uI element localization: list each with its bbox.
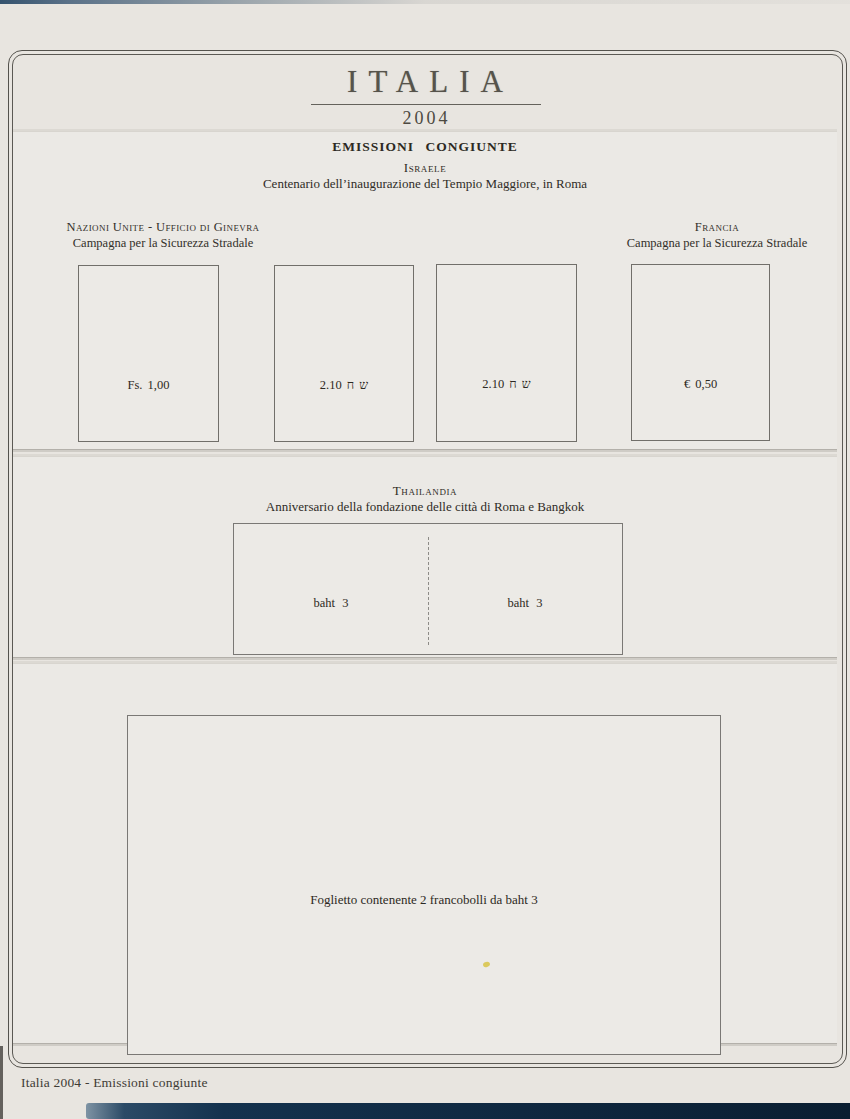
- country-israele: Israele: [13, 160, 837, 176]
- souvenir-sheet-placeholder: Foglietto contenente 2 francobolli da ba…: [127, 715, 721, 1055]
- label-francia: Francia Campagna per la Sicurezza Strada…: [607, 219, 827, 251]
- stamp-placeholder-euro-050: € 0,50: [631, 264, 770, 441]
- page-title: ITALIA: [0, 64, 850, 100]
- scan-edge-left: [0, 1046, 3, 1119]
- stamp-value: Fs. 1,00: [79, 378, 218, 393]
- title-underline: [311, 104, 541, 105]
- page-year: 2004: [0, 108, 850, 129]
- thailandia-description: Anniversario della fondazione delle citt…: [13, 499, 837, 515]
- stamp-value: ש ח 2.10: [437, 377, 576, 392]
- page-footer: Italia 2004 - Emissioni congiunte: [21, 1075, 208, 1091]
- israele-description: Centenario dell’inaugurazione del Tempio…: [13, 176, 837, 192]
- stamp-value: € 0,50: [632, 377, 769, 392]
- label-nazioni-unite-line2: Campagna per la Sicurezza Stradale: [53, 235, 273, 251]
- stamp-value: baht 3: [428, 596, 622, 611]
- scan-edge-top: [0, 0, 850, 4]
- section-thailandia: Thailandia Anniversario della fondazione…: [13, 456, 837, 658]
- binder-edge-bottom: [86, 1103, 850, 1119]
- label-nazioni-unite-line1: Nazioni Unite - Ufficio di Ginevra: [53, 219, 273, 235]
- section-israele: EMISSIONI CONGIUNTE Israele Centenario d…: [13, 131, 837, 450]
- stamp-pair-placeholder: baht 3 baht 3: [233, 523, 623, 655]
- page-heading: EMISSIONI CONGIUNTE: [13, 139, 837, 155]
- scan-speck-artifact: [482, 961, 490, 968]
- label-francia-line1: Francia: [607, 219, 827, 235]
- album-page-scan: ITALIA 2004 EMISSIONI CONGIUNTE Israele …: [0, 0, 850, 1119]
- souvenir-sheet-caption: Foglietto contenente 2 francobolli da ba…: [128, 892, 720, 908]
- stamp-placeholder-fs-100: Fs. 1,00: [78, 265, 219, 442]
- label-nazioni-unite: Nazioni Unite - Ufficio di Ginevra Campa…: [53, 219, 273, 251]
- stamp-placeholder-shekel-210-b: ש ח 2.10: [436, 264, 577, 442]
- country-thailandia: Thailandia: [13, 483, 837, 499]
- section-foglietto: Foglietto contenente 2 francobolli da ba…: [13, 663, 837, 1044]
- label-francia-line2: Campagna per la Sicurezza Stradale: [607, 235, 827, 251]
- stamp-value: baht 3: [234, 596, 428, 611]
- stamp-value: ש ח 2.10: [275, 378, 413, 393]
- stamp-placeholder-shekel-210-a: ש ח 2.10: [274, 265, 414, 442]
- perforation-dashed-divider: [428, 537, 429, 645]
